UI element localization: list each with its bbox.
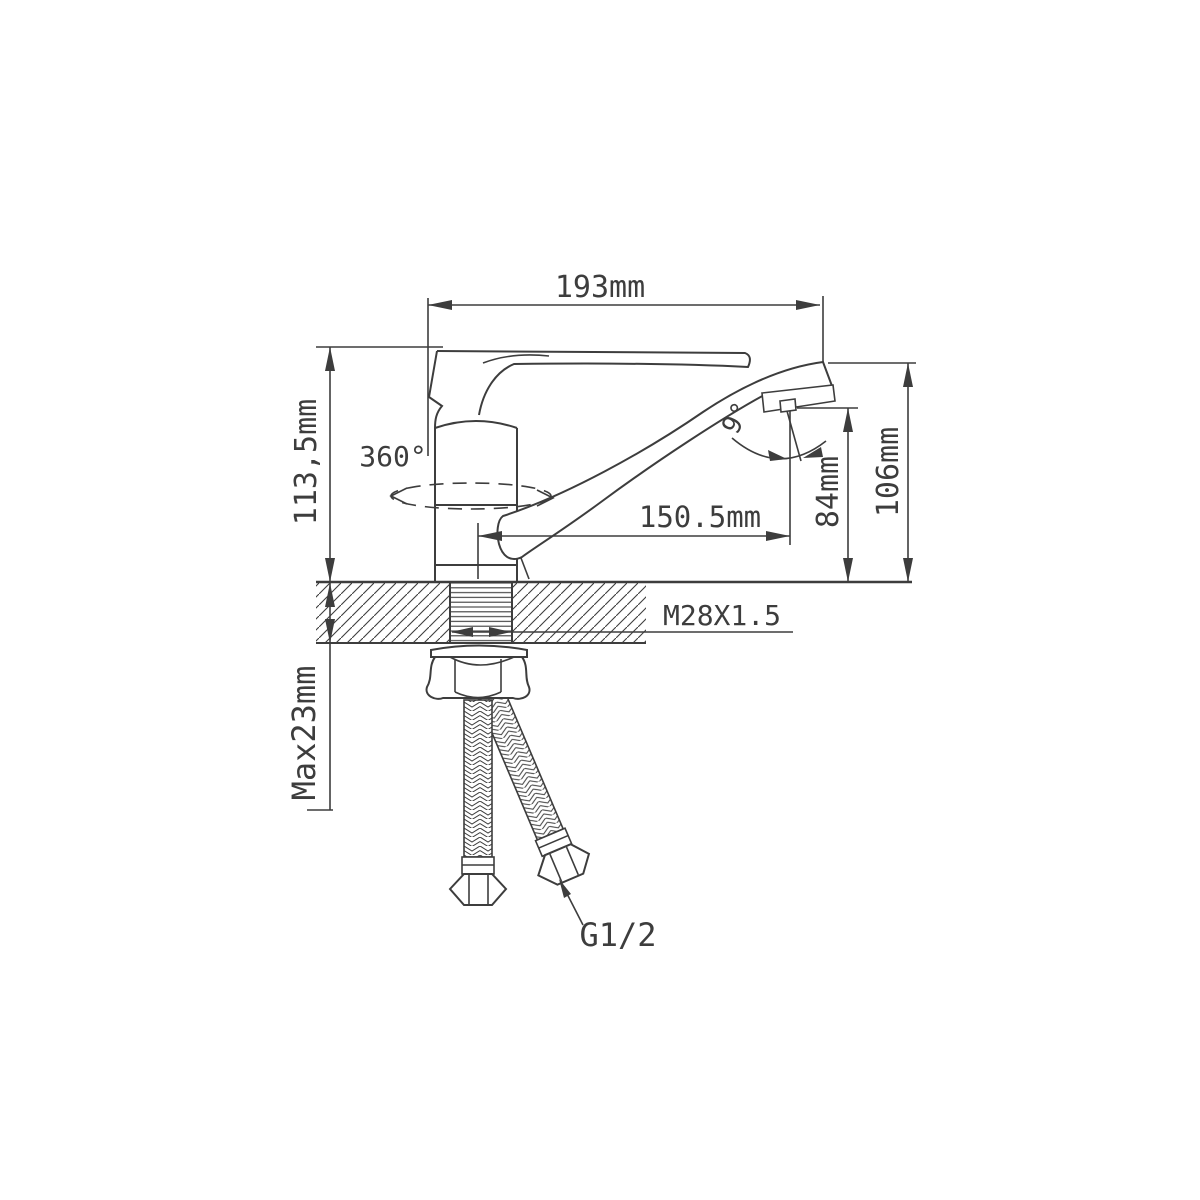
label-aerator-height: 84mm — [811, 456, 846, 528]
aerator-nozzle — [780, 399, 796, 412]
label-mounting-thread: M28X1.5 — [663, 599, 781, 632]
label-spout-reach: 150.5mm — [639, 500, 761, 534]
countertop — [316, 582, 912, 643]
label-swivel-angle: 360° — [359, 440, 426, 473]
technical-drawing-page: 193mm 113,5mm Max23mm 150.5mm 9° 8 — [0, 0, 1200, 1200]
faucet-technical-drawing: 193mm 113,5mm Max23mm 150.5mm 9° 8 — [0, 0, 1200, 1200]
label-overall-width: 193mm — [555, 270, 645, 305]
label-swivel-group: 360° — [359, 440, 426, 473]
dimension-aerator-height: 84mm — [797, 408, 858, 582]
label-spout-height: 106mm — [871, 427, 906, 517]
label-body-height: 113,5mm — [289, 399, 324, 525]
faucet-body — [435, 421, 517, 582]
label-max-mount-thickness: Max23mm — [285, 666, 323, 801]
hex-nut — [450, 874, 506, 905]
label-hose-thread: G1/2 — [579, 916, 656, 954]
dimension-hose-thread: G1/2 — [559, 879, 657, 954]
spout — [497, 362, 835, 579]
mounting-nut — [427, 646, 530, 699]
